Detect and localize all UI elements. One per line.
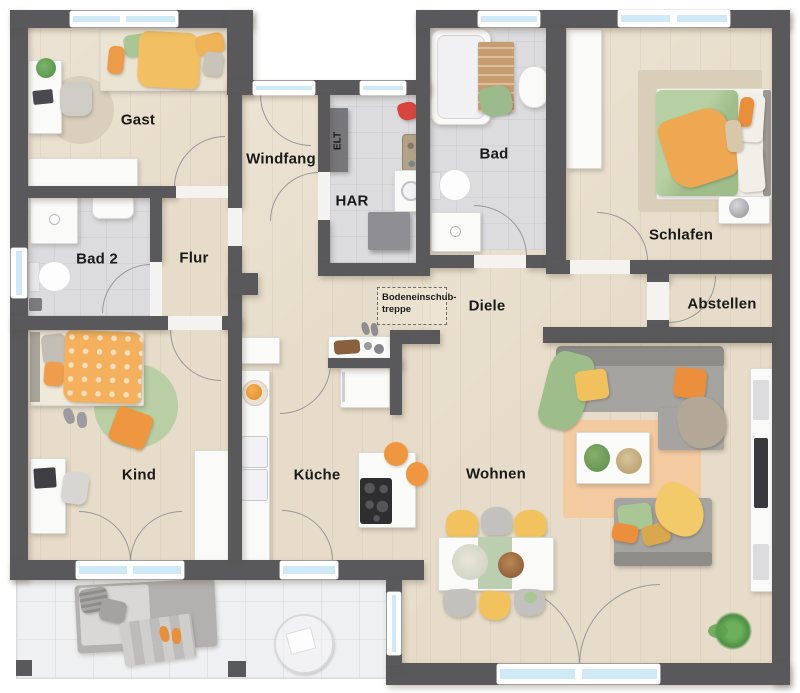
gast-door-opening	[176, 186, 228, 198]
wohnen-tv	[754, 438, 768, 508]
windfang-flur-door-opening	[228, 208, 242, 246]
gast-laptop	[32, 89, 53, 105]
kueche-sink-2	[241, 469, 268, 501]
attic-stairs-box: Bodeneinschub- treppe	[377, 287, 447, 325]
room-label-gast: Gast	[121, 112, 155, 129]
schlafen-door-opening	[570, 260, 630, 274]
wall-bad-south-a	[430, 255, 474, 268]
attic-stairs-label-line2: treppe	[382, 304, 446, 316]
window-bad	[478, 11, 540, 27]
kueche-fridge-handle	[342, 372, 345, 402]
wall-windfang-har-lower	[318, 220, 330, 263]
kueche-sink-1	[241, 436, 268, 468]
window-gast	[70, 11, 178, 27]
wall-outer-top-right	[416, 10, 790, 28]
wall-spine-upper	[228, 95, 242, 208]
diele-bench-bag	[334, 339, 361, 355]
har-storage-box	[368, 212, 410, 250]
wall-outer-right	[772, 10, 790, 685]
gast-pillow-gray	[201, 51, 224, 78]
diele-bench-item-2	[374, 344, 384, 354]
wall-bad-south-b	[526, 255, 548, 268]
bad2-bin	[29, 298, 42, 311]
dining-flowers	[452, 544, 488, 580]
room-label-bad: Bad	[480, 146, 509, 163]
gast-sideboard	[28, 158, 138, 189]
room-label-har: HAR	[335, 193, 368, 210]
wall-diele-corner	[228, 273, 258, 295]
room-label-bad2: Bad 2	[76, 251, 118, 268]
attic-stairs-label-line1: Bodeneinschub-	[382, 292, 446, 304]
schlafen-pillow-white-2	[736, 145, 766, 193]
schlafen-lamp	[729, 198, 749, 218]
room-label-kueche: Küche	[294, 467, 341, 484]
dining-chair-yellow-2	[513, 509, 547, 539]
kind-monitor	[33, 467, 56, 488]
kueche-stool-1	[384, 442, 408, 466]
gast-blanket	[137, 30, 202, 89]
window-wohnen-terrace	[387, 592, 401, 655]
wohnen-sofa2-back	[614, 552, 712, 566]
wall-har-south	[318, 263, 430, 276]
kind-chair	[60, 470, 90, 505]
abstellen-door-opening	[647, 282, 669, 320]
kind-door-opening	[168, 316, 222, 330]
kueche-cooktop	[360, 478, 392, 524]
wall-bad-east	[546, 28, 566, 260]
window-bad2	[11, 248, 27, 298]
kind-blanket	[63, 330, 143, 405]
room-label-diele: Diele	[469, 298, 506, 315]
room-label-flur: Flur	[179, 250, 208, 267]
gast-plant	[36, 58, 56, 78]
wall-schlafen-south-b	[630, 260, 772, 274]
wohnen-fern-leaf	[708, 624, 728, 638]
wall-bad2-east	[150, 192, 162, 262]
kueche-fruit	[246, 384, 262, 400]
room-label-windfang: Windfang	[246, 151, 316, 168]
room-label-schlafen: Schlafen	[649, 227, 713, 244]
wall-kueche-east	[390, 335, 402, 415]
kueche-tall-cabinet	[240, 337, 280, 364]
dining-chair-gray-1	[481, 506, 513, 535]
kind-terrace-door	[76, 561, 184, 579]
wohnen-shelf-decor-1	[753, 380, 769, 420]
wall-abstellen-stub-top	[647, 274, 669, 282]
terrace-sandal-2	[172, 628, 182, 644]
room-label-wohnen: Wohnen	[466, 466, 526, 483]
kind-wardrobe	[194, 450, 230, 564]
bad-door-opening	[474, 255, 526, 268]
wohnen-terrace-door	[497, 664, 660, 684]
room-label-abstellen: Abstellen	[687, 296, 756, 313]
gast-chair	[60, 82, 92, 116]
har-door-opening	[318, 172, 330, 220]
bad2-shower-drain	[49, 214, 60, 225]
kueche-terrace-door	[280, 561, 338, 579]
wall-flur-south-a	[10, 316, 168, 330]
wall-schlafen-south-a	[546, 260, 570, 274]
entrance-door-glazing	[253, 81, 315, 95]
bad-toilet	[439, 169, 471, 201]
floor-plan: Bodeneinschub- treppe Gast Windfang ELT …	[0, 0, 800, 693]
wohnen-table-plant	[584, 444, 610, 472]
diele-bench-item-1	[364, 342, 372, 350]
wall-wohnen-north-b	[543, 327, 772, 343]
wohnen-pillow-yellow	[574, 368, 610, 402]
wohnen-table-tray	[616, 448, 642, 474]
kind-headboard	[30, 332, 40, 402]
kind-slipper-2	[76, 412, 87, 429]
bad-shower-drain	[450, 226, 461, 237]
wohnen-pillow-orange	[673, 366, 708, 399]
kueche-stool-2	[406, 462, 428, 486]
wall-windfang-har-upper	[318, 95, 330, 172]
room-label-elt: ELT	[333, 132, 344, 150]
kueche-fridge	[340, 368, 390, 408]
dining-chair-yellow-1	[445, 509, 478, 539]
wall-bad-left	[416, 10, 430, 263]
terrace-post-2	[228, 661, 246, 677]
schlafen-pillow-tan	[724, 119, 743, 152]
room-label-kind: Kind	[122, 467, 156, 484]
bad2-toilet	[38, 261, 71, 292]
wohnen-shelf-decor-2	[753, 544, 769, 580]
gast-pillow-orange	[107, 45, 126, 75]
terrace-post-1	[16, 660, 32, 676]
window-schlafen	[618, 10, 730, 27]
wall-outer-bottom-left	[10, 560, 424, 580]
schlafen-wardrobe	[566, 29, 602, 169]
dining-bowl	[498, 552, 524, 578]
kind-pillow-orange	[43, 361, 65, 387]
window-har	[360, 81, 406, 95]
bad2-door-opening	[150, 262, 162, 316]
